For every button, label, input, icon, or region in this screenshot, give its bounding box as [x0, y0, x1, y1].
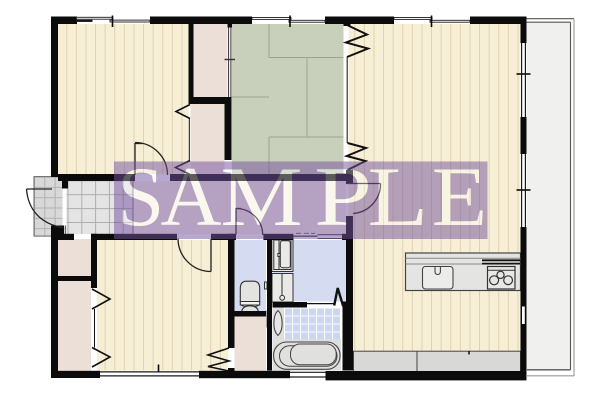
svg-text:M: M	[221, 150, 303, 244]
svg-text:P: P	[314, 150, 372, 244]
svg-text:L: L	[368, 150, 429, 244]
svg-text:E: E	[432, 150, 488, 244]
svg-text:A: A	[161, 150, 222, 244]
svg-text:S: S	[117, 150, 164, 244]
